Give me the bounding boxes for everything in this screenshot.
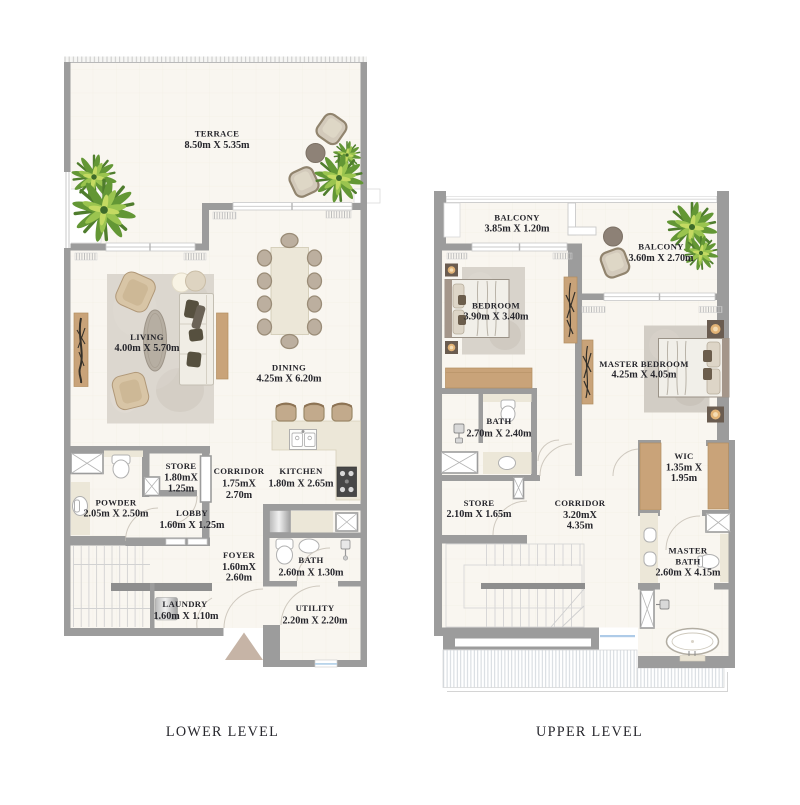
svg-text:DINING: DINING — [272, 362, 306, 372]
svg-text:4.25m X 4.05m: 4.25m X 4.05m — [611, 370, 677, 381]
svg-text:4.00m X 5.70m: 4.00m X 5.70m — [114, 343, 180, 354]
svg-text:BATH: BATH — [486, 416, 511, 426]
svg-text:2.60m X 1.30m: 2.60m X 1.30m — [278, 568, 344, 579]
svg-text:BALCONY: BALCONY — [494, 212, 540, 222]
svg-text:1.75mX: 1.75mX — [222, 479, 256, 490]
svg-text:4.25m X 6.20m: 4.25m X 6.20m — [256, 374, 322, 385]
svg-text:LAUNDRY: LAUNDRY — [162, 599, 208, 609]
svg-text:3.60m X 2.70m: 3.60m X 2.70m — [628, 253, 694, 264]
svg-text:WIC: WIC — [674, 451, 693, 461]
svg-text:2.70m: 2.70m — [226, 490, 253, 501]
svg-text:4.35m: 4.35m — [567, 521, 594, 532]
svg-text:FOYER: FOYER — [223, 550, 255, 560]
svg-text:3.85m X 1.20m: 3.85m X 1.20m — [484, 224, 550, 235]
svg-text:UPPER LEVEL: UPPER LEVEL — [536, 724, 643, 740]
svg-text:BEDROOM: BEDROOM — [472, 300, 520, 310]
svg-text:BATH: BATH — [675, 556, 700, 566]
svg-text:MASTER: MASTER — [669, 545, 708, 555]
svg-text:LOWER LEVEL: LOWER LEVEL — [166, 724, 279, 740]
svg-text:2.05m X 2.50m: 2.05m X 2.50m — [83, 509, 149, 520]
svg-text:1.95m: 1.95m — [671, 473, 698, 484]
svg-text:8.50m X 5.35m: 8.50m X 5.35m — [184, 140, 250, 151]
svg-text:1.80m X 2.65m: 1.80m X 2.65m — [268, 479, 334, 490]
svg-text:CORRIDOR: CORRIDOR — [555, 498, 606, 508]
svg-text:1.25m: 1.25m — [168, 484, 195, 495]
svg-text:3.90m X 3.40m: 3.90m X 3.40m — [463, 312, 529, 323]
svg-text:STORE: STORE — [166, 461, 197, 471]
svg-text:UTILITY: UTILITY — [296, 603, 335, 613]
svg-text:KITCHEN: KITCHEN — [279, 466, 323, 476]
svg-text:CORRIDOR: CORRIDOR — [214, 466, 265, 476]
svg-text:BALCONY: BALCONY — [638, 241, 684, 251]
svg-text:2.70m X 2.40m: 2.70m X 2.40m — [466, 429, 532, 440]
svg-text:2.20m X 2.20m: 2.20m X 2.20m — [282, 616, 348, 627]
svg-text:TERRACE: TERRACE — [195, 128, 240, 138]
svg-text:MASTER BEDROOM: MASTER BEDROOM — [599, 359, 688, 369]
svg-text:LOBBY: LOBBY — [176, 508, 208, 518]
svg-text:STORE: STORE — [464, 498, 495, 508]
svg-text:2.10m X 1.65m: 2.10m X 1.65m — [446, 509, 512, 520]
svg-text:3.20mX: 3.20mX — [563, 510, 597, 521]
svg-text:1.60m X 1.10m: 1.60m X 1.10m — [153, 611, 219, 622]
svg-text:2.60m: 2.60m — [226, 573, 253, 584]
svg-text:1.60m X 1.25m: 1.60m X 1.25m — [159, 520, 225, 531]
svg-text:LIVING: LIVING — [130, 332, 164, 342]
svg-text:1.35m X: 1.35m X — [666, 463, 703, 474]
svg-text:POWDER: POWDER — [96, 497, 137, 507]
svg-text:1.80mX: 1.80mX — [164, 473, 198, 484]
svg-text:BATH: BATH — [298, 555, 323, 565]
svg-text:1.60mX: 1.60mX — [222, 562, 256, 573]
svg-text:2.60m X 4.15m: 2.60m X 4.15m — [655, 568, 721, 579]
